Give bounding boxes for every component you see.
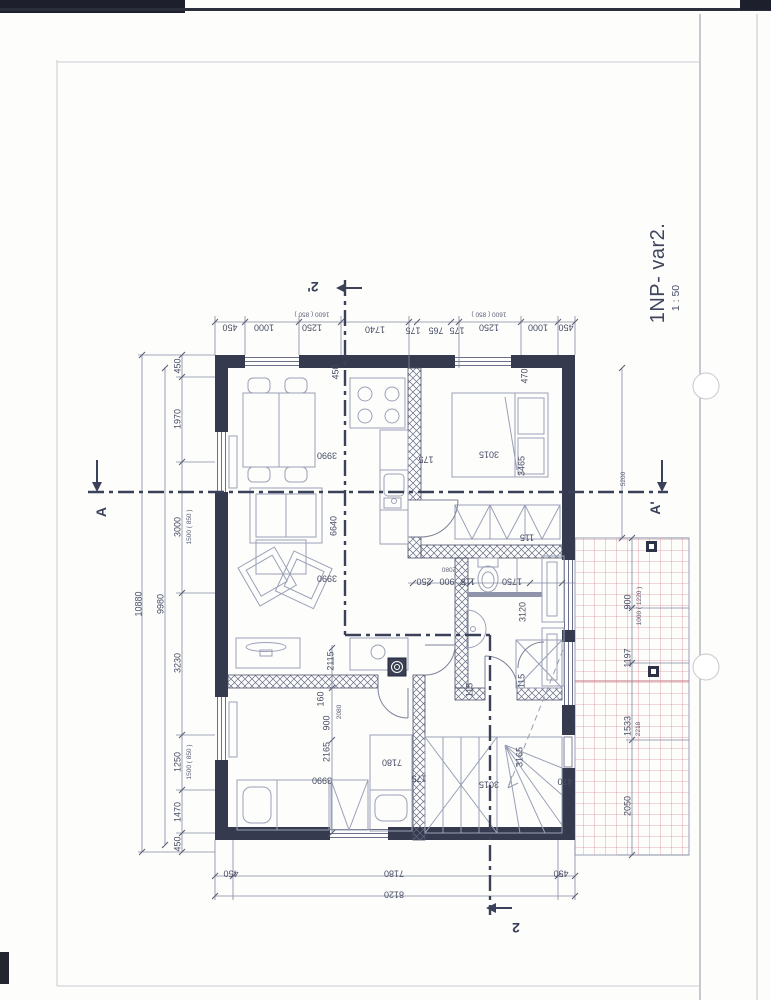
dim-label: 175 — [449, 326, 464, 335]
dim-label: 115 — [518, 674, 527, 688]
dim-label: 5200 — [621, 472, 628, 486]
dim-label: 1250 — [302, 323, 322, 332]
dim-label: 3990 — [312, 776, 332, 785]
dim-label: 450 — [222, 323, 237, 332]
dim-label: 2115 — [327, 651, 336, 670]
dim-label: 115 — [466, 683, 475, 697]
dim-label: 1500 ( 850 ) — [187, 509, 194, 544]
dim-label: 2050 — [624, 796, 633, 816]
dim-label: 2218 — [636, 722, 643, 736]
section-marker-2-prime: 2' — [307, 280, 318, 294]
dim-label: 2080 — [442, 565, 456, 572]
dim-label: 1000 — [254, 323, 274, 332]
dim-label: 1000 — [528, 323, 548, 332]
dim-label: 900 — [439, 577, 454, 586]
dim-label: 175 — [405, 326, 420, 335]
dim-label: 7180 — [382, 758, 402, 767]
dim-label: 1470 — [174, 802, 183, 822]
dim-label: 115 — [520, 533, 534, 542]
dim-label: 1740 — [365, 325, 385, 334]
dim-label: 900 — [323, 715, 332, 730]
dim-label: 3015 — [479, 450, 499, 459]
dim-label: 6640 — [330, 516, 339, 536]
section-marker-a-prime: A' — [648, 501, 662, 514]
dim-label: 2165 — [323, 742, 332, 762]
dim-label: 175 — [418, 455, 433, 464]
dimension-labels-layer: 450100012501600 ( 850 )17401757651751250… — [0, 0, 771, 1000]
dim-label: 7180 — [384, 869, 404, 878]
dim-label: 3120 — [519, 602, 528, 622]
dim-label: 3990 — [317, 574, 337, 583]
dim-label: 450 — [174, 836, 183, 851]
dim-label: 160 — [317, 691, 326, 706]
dim-label: 765 — [428, 326, 443, 335]
dim-label: 2080 — [337, 705, 344, 719]
dim-label: 450 — [553, 869, 568, 878]
dim-label: 3465 — [518, 456, 527, 476]
dim-label: 1600 ( 850 ) — [471, 310, 506, 317]
dim-label: 1970 — [174, 409, 183, 429]
dim-label: 1500 ( 850 ) — [187, 744, 194, 779]
dim-label: 9980 — [157, 594, 166, 614]
dim-label: 1000 ( 1220 ) — [637, 587, 644, 626]
dim-label: 3990 — [317, 451, 337, 460]
dim-label: 470 — [521, 368, 530, 383]
dim-label: 1250 — [174, 752, 183, 772]
section-marker-a: A — [94, 507, 108, 517]
dim-label: 3000 — [174, 517, 183, 537]
dim-label: 450 — [332, 364, 341, 379]
scanned-floor-plan-page: 450100012501600 ( 850 )17401757651751250… — [0, 0, 771, 1000]
dim-label: 3230 — [174, 653, 183, 673]
dim-label: 8120 — [384, 890, 404, 899]
dim-label: 1533 — [624, 716, 633, 736]
dim-label: 1197 — [624, 648, 633, 667]
dim-label: 470 — [557, 777, 572, 786]
dim-label: 115 — [461, 577, 475, 586]
dim-label: 900 — [624, 594, 633, 609]
dim-label: 250 — [416, 577, 431, 586]
dim-label: 175 — [411, 774, 426, 783]
dim-label: 3165 — [516, 747, 525, 767]
dim-label: 10880 — [135, 591, 144, 616]
dim-label: 450 — [558, 323, 573, 332]
dim-label: 1600 ( 850 ) — [294, 310, 329, 317]
dim-label: 1250 — [479, 323, 499, 332]
dim-label: 450 — [223, 869, 238, 878]
dim-label: 1750 — [502, 577, 522, 586]
dim-label: 450 — [174, 358, 183, 373]
drawing-scale: 1 : 50 — [646, 268, 706, 328]
dim-label: 3015 — [479, 780, 499, 789]
section-marker-2: 2 — [512, 921, 520, 935]
